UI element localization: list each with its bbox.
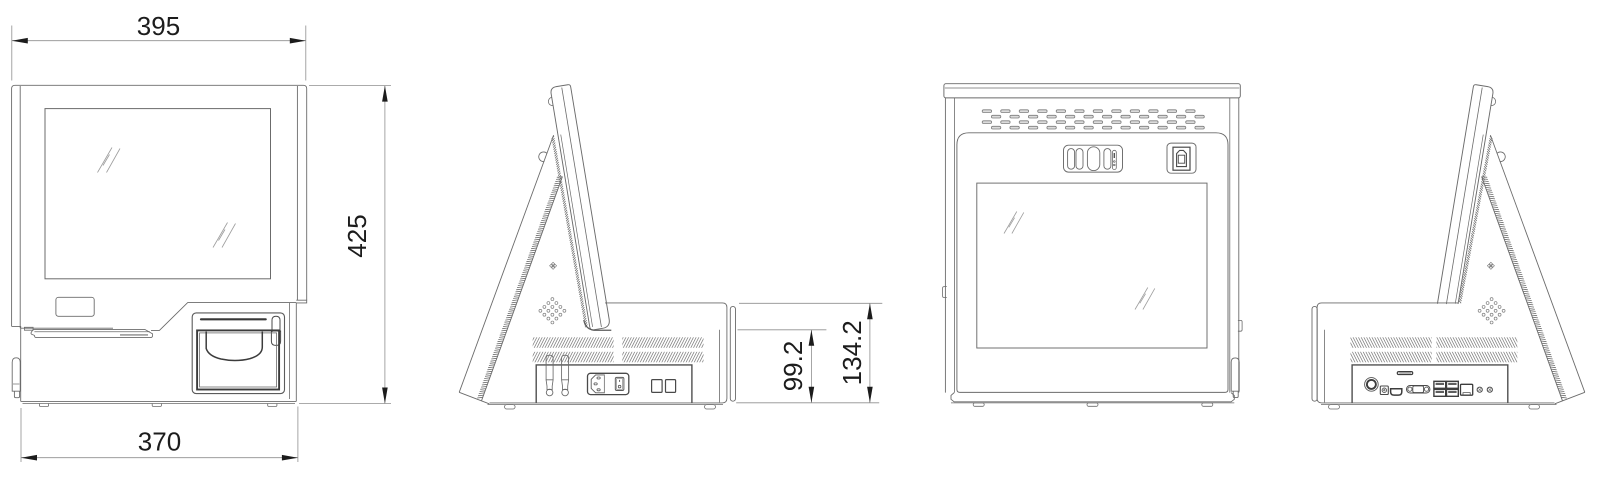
svg-text:395: 395 [137, 11, 180, 41]
svg-text:370: 370 [138, 427, 181, 457]
svg-text:134.2: 134.2 [837, 320, 867, 385]
svg-text:99.2: 99.2 [778, 341, 808, 392]
svg-text:425: 425 [342, 214, 372, 257]
